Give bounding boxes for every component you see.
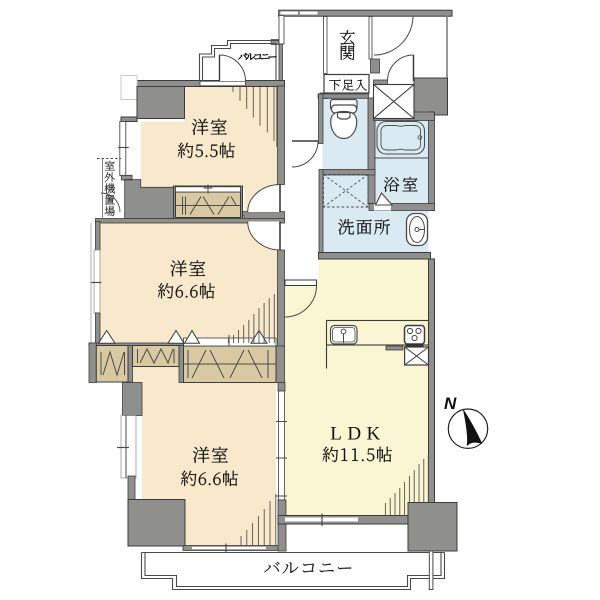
svg-text:LDK: LDK: [330, 424, 386, 445]
svg-text:N: N: [444, 394, 457, 413]
